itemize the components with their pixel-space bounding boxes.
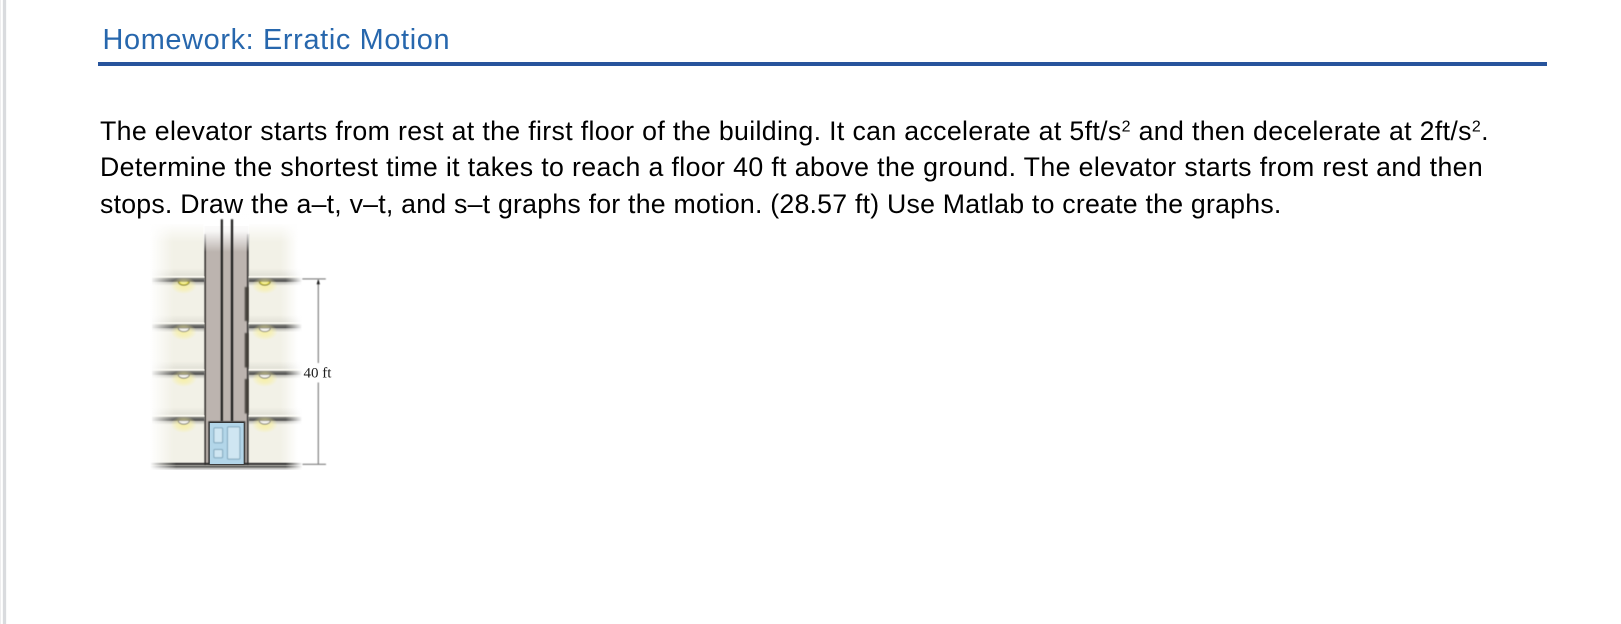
svg-text:40 ft: 40 ft bbox=[304, 365, 333, 381]
